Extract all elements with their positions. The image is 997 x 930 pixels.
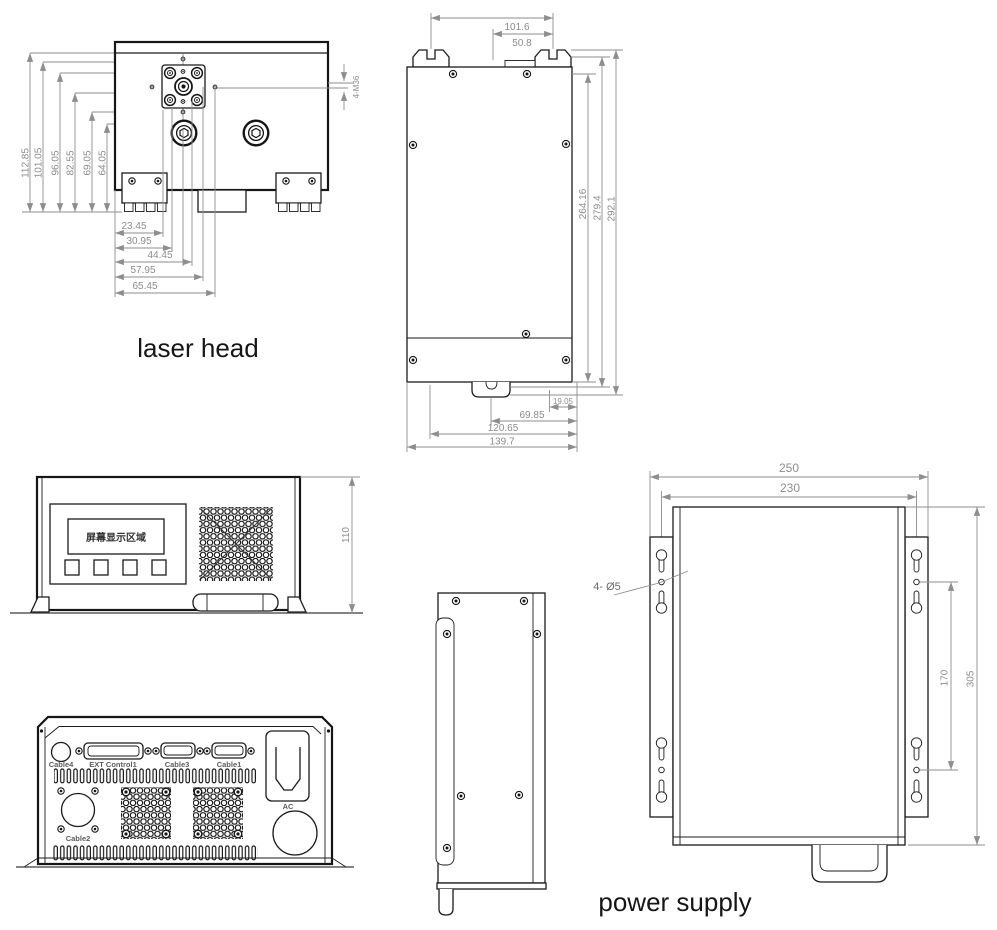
view-power-supply-side xyxy=(436,593,546,915)
panel-button-2[interactable] xyxy=(94,560,108,575)
cable3-connector[interactable] xyxy=(161,743,195,758)
rear-round-vent xyxy=(273,811,317,855)
hole-note: 4- Ø5 xyxy=(593,581,621,593)
ac-label: AC xyxy=(283,802,294,811)
view-power-supply-front: 屏幕显示区域 110 xyxy=(10,477,363,613)
dim-305: 305 xyxy=(966,670,977,687)
dim-30-95: 30.95 xyxy=(126,236,151,247)
dim-57-95: 57.95 xyxy=(130,265,155,276)
panel-button-3[interactable] xyxy=(123,560,137,575)
dim-65-45: 65.45 xyxy=(132,281,157,292)
dim-69-05: 69.05 xyxy=(83,150,94,175)
top-handle xyxy=(812,845,887,882)
dim-64-05: 64.05 xyxy=(98,150,109,175)
view-power-supply-top: 250 230 4- Ø5 170 xyxy=(593,461,985,882)
cable4-label: Cable4 xyxy=(49,760,74,769)
cable1-connector[interactable] xyxy=(212,743,246,758)
bottom-clamp xyxy=(472,382,510,397)
clamp-right xyxy=(535,50,571,67)
panel-button-4[interactable] xyxy=(152,560,166,575)
dim-23-45: 23.45 xyxy=(121,221,146,232)
dim-250: 250 xyxy=(779,461,799,475)
bottom-protrusion xyxy=(198,190,246,212)
dim-101-05: 101.05 xyxy=(34,147,45,178)
front-handle xyxy=(193,594,278,611)
view-power-supply-rear: Cable4 EXT Control1 Cable3 Cable1 Cable2… xyxy=(16,717,354,867)
dim-264-16: 264.16 xyxy=(578,188,589,219)
cable1-label: Cable1 xyxy=(217,760,242,769)
view-laser-head-front: 112.85 101.05 96.05 82.55 69.05 64.05 xyxy=(21,42,362,297)
dim-279-4: 279.4 xyxy=(593,195,604,220)
caption-laser-head: laser head xyxy=(137,333,258,363)
dim-19-05: 19.05 xyxy=(553,397,574,406)
side-base xyxy=(437,883,546,889)
dim-44-45: 44.45 xyxy=(147,250,172,261)
side-foot xyxy=(439,889,453,915)
dim-110: 110 xyxy=(341,527,352,543)
hex-screw-right xyxy=(244,121,269,146)
cable3-label: Cable3 xyxy=(165,760,190,769)
laser-head-side-body xyxy=(407,67,572,382)
side-bracket xyxy=(436,618,454,865)
laser-head-body xyxy=(115,42,328,190)
pilot-hole xyxy=(659,767,665,773)
ext-control1-label: EXT Control1 xyxy=(89,760,137,769)
thread-note: 4-M36 xyxy=(352,75,361,98)
foot-right xyxy=(276,173,321,203)
psu-top-body xyxy=(673,507,905,845)
dim-112-85: 112.85 xyxy=(21,148,32,178)
panel-button-1[interactable] xyxy=(65,560,79,575)
view-laser-head-side: 101.6 50.8 264.16 279.4 292.1 xyxy=(407,13,623,452)
hex-screw-left xyxy=(172,121,197,146)
dim-120-65: 120.65 xyxy=(488,423,519,434)
technical-drawing-page: 112.85 101.05 96.05 82.55 69.05 64.05 xyxy=(0,0,997,930)
dim-292-1: 292.1 xyxy=(607,196,618,221)
dim-139-7: 139.7 xyxy=(489,437,514,448)
dim-82-55: 82.55 xyxy=(66,150,77,175)
dim-69-85: 69.85 xyxy=(519,410,544,421)
pilot-hole xyxy=(914,767,920,773)
dim-50-8: 50.8 xyxy=(512,38,532,49)
foot-left xyxy=(122,173,167,203)
cable2-label: Cable2 xyxy=(66,834,91,843)
clamp-left xyxy=(413,50,449,67)
vent-row-top xyxy=(54,768,257,784)
caption-power-supply: power supply xyxy=(598,887,751,917)
dim-170: 170 xyxy=(940,669,951,686)
cable2-connector[interactable] xyxy=(62,794,95,827)
vent-row-bottom xyxy=(53,845,258,861)
display-text: 屏幕显示区域 xyxy=(85,531,146,544)
cable4-connector[interactable] xyxy=(52,743,71,762)
dim-96-05: 96.05 xyxy=(51,150,62,175)
pilot-hole xyxy=(914,579,920,585)
ext-control1-connector[interactable] xyxy=(84,743,143,759)
drawing-canvas: 112.85 101.05 96.05 82.55 69.05 64.05 xyxy=(0,0,997,930)
dim-101-6: 101.6 xyxy=(504,22,529,33)
dim-230: 230 xyxy=(780,481,800,495)
